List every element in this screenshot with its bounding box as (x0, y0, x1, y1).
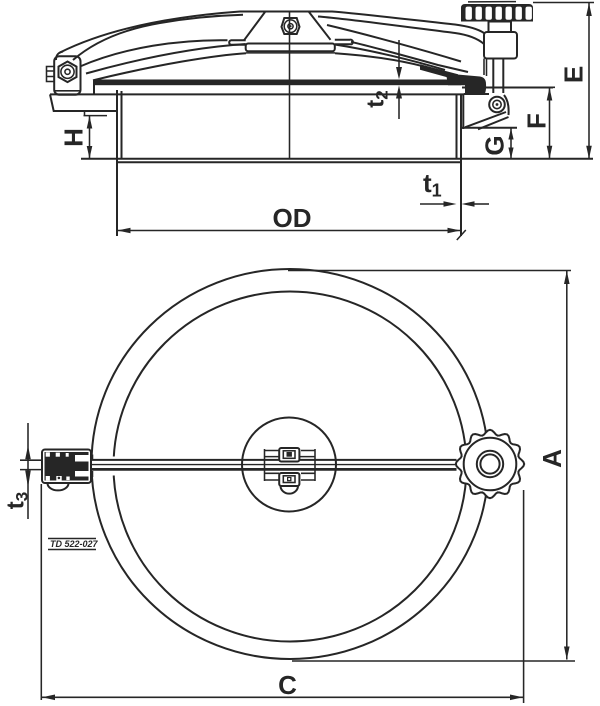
svg-text:C: C (278, 670, 297, 700)
svg-text:t1: t1 (423, 168, 442, 201)
svg-text:G: G (480, 135, 510, 155)
svg-text:A: A (537, 449, 567, 468)
svg-text:F: F (522, 113, 552, 129)
svg-text:TD 522-027: TD 522-027 (50, 539, 99, 549)
svg-text:OD: OD (273, 203, 312, 233)
svg-text:t2: t2 (363, 90, 392, 107)
svg-text:t3: t3 (3, 492, 32, 509)
svg-text:E: E (559, 66, 589, 83)
svg-text:H: H (59, 128, 89, 147)
